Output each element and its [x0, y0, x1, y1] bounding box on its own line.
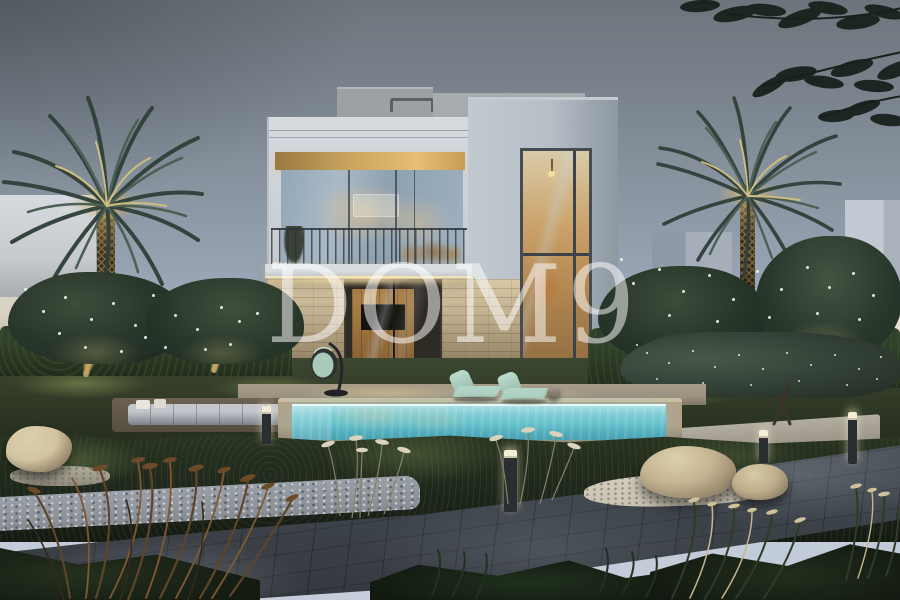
- ferns-center-bottom: [432, 548, 657, 598]
- overhanging-branch: [680, 0, 900, 128]
- feather-grass-center: [321, 434, 412, 518]
- grass-right-corner: [846, 482, 898, 580]
- fountain-grass-right: [672, 496, 806, 600]
- trademark-symbol: ™: [270, 260, 291, 280]
- tree-trunk-right-path: [774, 384, 790, 424]
- watermark-text: DOM9: [266, 252, 640, 360]
- ornamental-grass-left: [27, 456, 300, 600]
- villa-dusk-render: DOM9™: [0, 0, 900, 600]
- feather-grass-right: [489, 427, 582, 505]
